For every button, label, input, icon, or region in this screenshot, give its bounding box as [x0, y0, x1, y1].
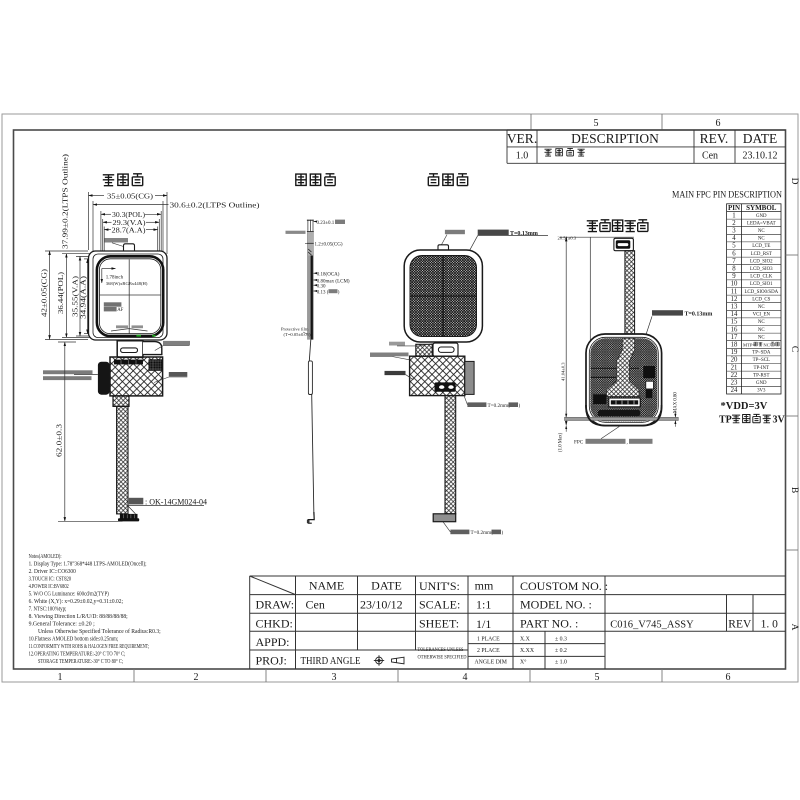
svg-text:LCD_SIO1: LCD_SIO1	[750, 282, 773, 287]
svg-text:18: 18	[731, 342, 738, 349]
svg-text:VER.: VER.	[507, 131, 537, 146]
svg-text:(1.0 Max): (1.0 Max)	[559, 432, 564, 452]
svg-text:10.Flatness AMOLED bottom side: 10.Flatness AMOLED bottom side≤0.25mm;	[29, 636, 119, 643]
svg-text:LCD_CLK: LCD_CLK	[750, 275, 772, 280]
svg-text:5. W/O CG Luminance: 600cd/m2(: 5. W/O CG Luminance: 600cd/m2(TYP)	[29, 591, 109, 598]
svg-text:1. 0: 1. 0	[761, 618, 779, 630]
svg-text:1: 1	[732, 212, 735, 219]
svg-text:Protective film: Protective film	[281, 327, 309, 332]
svg-text:0.30: 0.30	[317, 285, 326, 290]
svg-text:TOLERANCES UNLESS: TOLERANCES UNLESS	[418, 647, 464, 653]
svg-text:5: 5	[594, 118, 599, 129]
svg-text:Notes(AMOLED):: Notes(AMOLED):	[29, 553, 62, 560]
svg-text:6. White (X,Y): x=0.29±0.02,y=: 6. White (X,Y): x=0.29±0.02,y=0.31±0.02;	[29, 598, 124, 605]
svg-text:AF: AF	[117, 308, 123, 313]
svg-text:0.13 (: 0.13 (	[317, 290, 329, 295]
svg-text:1.2±0.05(CG): 1.2±0.05(CG)	[315, 243, 343, 248]
svg-text:35.55(V.A): 35.55(V.A)	[72, 275, 80, 317]
svg-text:D: D	[789, 178, 799, 185]
svg-text:11: 11	[731, 288, 738, 295]
svg-text:T=0.2mm(: T=0.2mm(	[471, 529, 494, 536]
svg-text:1 PLACE: 1 PLACE	[477, 636, 500, 642]
svg-text:± 1.0: ± 1.0	[555, 660, 567, 666]
svg-text:FPC: FPC	[574, 440, 584, 446]
svg-text:CHKD:: CHKD:	[256, 616, 293, 630]
svg-text:7: 7	[732, 258, 736, 265]
svg-text:NC: NC	[763, 342, 769, 347]
svg-text:LCD_SIO3: LCD_SIO3	[750, 267, 773, 272]
svg-text:368(W)xRGBx448(H): 368(W)xRGBx448(H)	[106, 281, 148, 286]
svg-text:NC: NC	[758, 328, 765, 333]
svg-text:± 0.3: ± 0.3	[555, 636, 567, 642]
svg-text:5: 5	[732, 243, 736, 250]
svg-text:MAIN FPC PIN DESCRIPTION: MAIN FPC PIN DESCRIPTION	[672, 191, 782, 201]
svg-text:± 0.2: ± 0.2	[555, 648, 567, 654]
svg-text:ANGLE DIM: ANGLE DIM	[475, 660, 507, 666]
svg-text:15: 15	[731, 319, 738, 326]
svg-text:23: 23	[731, 380, 738, 387]
svg-text:SCALE:: SCALE:	[419, 598, 460, 612]
svg-text:0.23±0.1: 0.23±0.1	[317, 221, 335, 226]
svg-text:1/1: 1/1	[476, 617, 491, 631]
svg-text:5: 5	[595, 672, 600, 683]
svg-text:16: 16	[731, 326, 738, 333]
svg-text:DESCRIPTION: DESCRIPTION	[571, 131, 659, 146]
svg-text:23/10/12: 23/10/12	[360, 598, 403, 612]
svg-text:LCD_SIO0/SDA: LCD_SIO0/SDA	[744, 290, 778, 295]
svg-text:PIN: PIN	[728, 204, 740, 212]
svg-text:SYMBOL: SYMBOL	[746, 204, 777, 212]
svg-text:24: 24	[731, 387, 738, 394]
svg-text:23.10.12: 23.10.12	[743, 151, 778, 162]
svg-text:4: 4	[732, 235, 736, 242]
svg-text:10: 10	[731, 281, 738, 288]
svg-text:1.78inch: 1.78inch	[106, 276, 124, 281]
svg-text:22: 22	[731, 372, 738, 379]
svg-text:37.99±0.2(LTPS Outline): 37.99±0.2(LTPS Outline)	[61, 153, 70, 249]
svg-text:6: 6	[732, 250, 736, 257]
svg-text:B: B	[789, 487, 799, 493]
svg-text:17: 17	[731, 334, 738, 341]
svg-text:30.6±0.2(LTPS Outline): 30.6±0.2(LTPS Outline)	[170, 201, 261, 210]
svg-text:TP: TP	[719, 415, 732, 426]
svg-text:41.04±0.3: 41.04±0.3	[561, 362, 566, 381]
svg-text:19: 19	[731, 349, 738, 356]
svg-text:TP~SDA: TP~SDA	[752, 351, 771, 356]
svg-text:PROJ:: PROJ:	[256, 653, 287, 667]
svg-text:VCI_EN: VCI_EN	[753, 313, 771, 318]
svg-text:2. Driver IC::CO6300: 2. Driver IC::CO6300	[29, 568, 76, 575]
svg-text:36.44(POL): 36.44(POL)	[57, 271, 65, 314]
svg-text:3V: 3V	[773, 415, 786, 426]
svg-text:20: 20	[731, 357, 738, 364]
svg-text:21: 21	[731, 364, 738, 371]
svg-text:DRAW:: DRAW:	[256, 598, 295, 612]
svg-text:LCD_RST: LCD_RST	[751, 252, 772, 257]
svg-text:LCD_TE: LCD_TE	[752, 244, 770, 249]
svg-text:3V3: 3V3	[757, 389, 766, 394]
svg-text:COUSTOM NO. :: COUSTOM NO. :	[520, 579, 608, 593]
svg-text:DATE: DATE	[743, 131, 778, 146]
svg-text:REV.: REV.	[700, 131, 729, 146]
svg-text:TP~SCL: TP~SCL	[753, 358, 770, 363]
svg-text:42±0.05(CG): 42±0.05(CG)	[41, 268, 49, 317]
svg-text:1:1: 1:1	[476, 598, 491, 612]
svg-text:3.TOUCH IC: CST820: 3.TOUCH IC: CST820	[29, 576, 72, 583]
svg-text:62.0±0.3: 62.0±0.3	[56, 423, 64, 457]
svg-text:1. Display Type: 1.78”368*448: 1. Display Type: 1.78”368*448 LTPS-AMOLE…	[29, 561, 147, 568]
svg-text:TP-INT: TP-INT	[754, 366, 769, 371]
svg-text:Cen: Cen	[702, 151, 718, 162]
svg-text:2: 2	[732, 220, 736, 227]
svg-text:(T=0.05±0.01): (T=0.05±0.01)	[284, 332, 312, 337]
svg-text:): )	[502, 529, 504, 536]
svg-text:GND: GND	[756, 214, 767, 219]
svg-text:X.XX: X.XX	[520, 648, 535, 654]
svg-text:C016_V745_ASSY: C016_V745_ASSY	[610, 619, 694, 630]
svg-text:PART NO. :: PART NO. :	[520, 616, 578, 630]
svg-text:NC: NC	[758, 237, 765, 242]
svg-text:TP-RST: TP-RST	[753, 373, 769, 378]
svg-text:12: 12	[731, 296, 738, 303]
svg-text:8: 8	[732, 266, 736, 273]
svg-text:13: 13	[731, 304, 738, 311]
svg-text:MAX 0.80: MAX 0.80	[674, 392, 679, 413]
svg-text:2 PLACE: 2 PLACE	[477, 648, 500, 654]
svg-text:C: C	[789, 346, 799, 352]
svg-text:LCD_SIO2: LCD_SIO2	[750, 259, 773, 264]
svg-text:*VDD=3V: *VDD=3V	[721, 401, 768, 412]
svg-text:Unless Otherwise Specified Tol: Unless Otherwise Specified Tolerance of …	[38, 628, 161, 635]
svg-text:X.X: X.X	[520, 636, 531, 642]
svg-text:LCD_CS: LCD_CS	[752, 297, 770, 302]
svg-text:NC: NC	[758, 320, 765, 325]
svg-text:T=0.2mm(: T=0.2mm(	[488, 402, 511, 409]
svg-text:1.0: 1.0	[516, 151, 529, 162]
svg-text:6: 6	[716, 118, 721, 129]
svg-text:34.94(A.A): 34.94(A.A)	[80, 275, 88, 319]
svg-text:X°: X°	[520, 659, 527, 666]
svg-text:mm: mm	[475, 579, 494, 593]
svg-text:9.General Tolerance: ±0.20 ;: 9.General Tolerance: ±0.20 ;	[29, 621, 95, 628]
svg-text:STORAGE TEMPERATURE:-30° C TO: STORAGE TEMPERATURE:-30° C TO 80° C;	[38, 658, 123, 665]
svg-text:0.18(OCA): 0.18(OCA)	[317, 273, 340, 278]
svg-text:): )	[519, 402, 521, 409]
svg-text:8. Viewing Direction L/R/U/D:: 8. Viewing Direction L/R/U/D: 88/88/88/8…	[29, 613, 128, 620]
svg-text:6: 6	[726, 672, 731, 683]
svg-text:MTP=: MTP=	[743, 342, 755, 347]
svg-text:NC: NC	[758, 335, 765, 340]
svg-text:1: 1	[58, 672, 63, 683]
svg-text:UNIT'S:: UNIT'S:	[419, 579, 460, 593]
svg-text:2: 2	[194, 672, 199, 683]
svg-text:A: A	[789, 624, 799, 631]
svg-text:11.CONFORMITY WITH ROHS & HALO: 11.CONFORMITY WITH ROHS & HALOGEN FREE R…	[29, 643, 150, 650]
svg-text:REV: REV	[728, 618, 752, 630]
svg-text:APPD:: APPD:	[256, 635, 290, 649]
svg-text:9: 9	[732, 273, 736, 280]
svg-text:GND: GND	[756, 381, 767, 386]
svg-text:4: 4	[463, 672, 468, 683]
svg-text:12.OPERATING TEMPERATURE:-20°: 12.OPERATING TEMPERATURE:-20° C TO 70° C…	[29, 651, 126, 658]
svg-text:4.POWER IC:BV6802: 4.POWER IC:BV6802	[29, 583, 69, 590]
svg-text:NAME: NAME	[309, 579, 344, 593]
svg-text:28.7(A.A): 28.7(A.A)	[112, 225, 147, 234]
svg-text:OTHERWISE SPECIFIED: OTHERWISE SPECIFIED	[418, 654, 467, 660]
svg-text:NC: NC	[758, 229, 765, 234]
svg-text:THIRD ANGLE: THIRD ANGLE	[301, 655, 361, 667]
svg-text:DATE: DATE	[371, 579, 402, 593]
svg-text:,: ,	[627, 440, 628, 446]
svg-text:3: 3	[332, 672, 337, 683]
svg-text:3: 3	[732, 228, 736, 235]
svg-text:LEDA=VBAT: LEDA=VBAT	[747, 221, 776, 226]
svg-text:Cen: Cen	[306, 598, 325, 612]
svg-text:SHEET:: SHEET:	[419, 616, 459, 630]
svg-text:NC: NC	[758, 305, 765, 310]
svg-text:MODEL NO. :: MODEL NO. :	[520, 598, 592, 612]
svg-text:28.51±0.3: 28.51±0.3	[558, 236, 577, 241]
svg-text:35±0.05(CG): 35±0.05(CG)	[107, 191, 154, 200]
svg-text:7. NTSC:100%typ;: 7. NTSC:100%typ;	[29, 606, 67, 613]
svg-text:T=0.13mm: T=0.13mm	[685, 311, 713, 317]
svg-text:14: 14	[731, 311, 738, 318]
